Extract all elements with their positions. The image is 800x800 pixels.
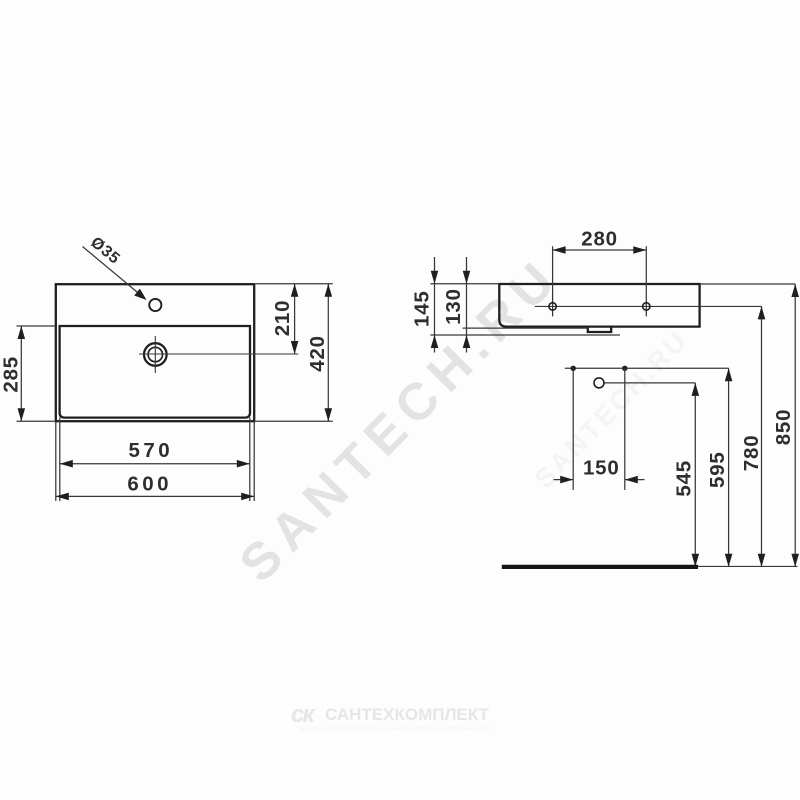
svg-text:285: 285 (0, 356, 23, 393)
svg-text:Ø35: Ø35 (87, 234, 123, 268)
svg-text:ск: ск (291, 701, 316, 728)
svg-text:570: 570 (128, 439, 173, 462)
svg-text:210: 210 (271, 300, 294, 337)
svg-text:420: 420 (306, 335, 329, 372)
svg-text:595: 595 (706, 451, 729, 488)
svg-text:САНТЕХКОМПЛЕКТ: САНТЕХКОМПЛЕКТ (325, 705, 490, 724)
svg-text:МОСКВА • САНКТ-ПЕТЕРБУРГ • НИЖ: МОСКВА • САНКТ-ПЕТЕРБУРГ • НИЖНИЙ НОВГОР… (300, 725, 491, 733)
svg-text:145: 145 (410, 290, 433, 327)
svg-text:SANTECH.RU: SANTECH.RU (229, 247, 572, 594)
svg-text:850: 850 (772, 409, 795, 446)
svg-text:600: 600 (127, 472, 172, 495)
svg-text:130: 130 (442, 288, 465, 325)
svg-text:150: 150 (583, 457, 620, 480)
svg-text:780: 780 (740, 435, 763, 472)
svg-text:545: 545 (673, 460, 696, 497)
svg-text:280: 280 (581, 227, 618, 250)
